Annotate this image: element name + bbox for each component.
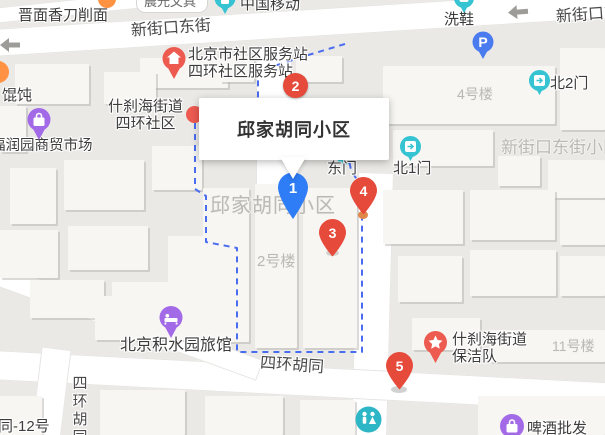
building: [64, 160, 144, 210]
result-marker-4[interactable]: 4: [350, 177, 377, 215]
orange-poi-icon-partial-left[interactable]: [0, 61, 9, 83]
building: [470, 190, 555, 240]
result-marker-1[interactable]: 1: [278, 172, 308, 220]
orange-poi-icon-partial-top[interactable]: [98, 0, 116, 8]
poi-label-xixie[interactable]: 洗鞋: [444, 12, 474, 29]
svg-text:4: 4: [360, 183, 368, 199]
building: [498, 156, 540, 186]
building: [0, 230, 58, 278]
building: [68, 226, 148, 270]
building: [30, 280, 104, 318]
poi-label-hotel[interactable]: 北京积水园旅馆: [120, 337, 232, 355]
xixie-pin-icon[interactable]: [453, 0, 475, 14]
poi-label-shichahai-shequ[interactable]: 什刹海街道 四环社区: [108, 99, 183, 132]
baojiedui-pin-icon[interactable]: [423, 331, 448, 364]
china-mobile-pin-icon[interactable]: [214, 0, 236, 15]
marker-2-number: 2: [292, 78, 300, 94]
building: [470, 250, 556, 296]
svg-text:1: 1: [289, 180, 297, 197]
poi-label-dongmen[interactable]: 东门: [327, 161, 357, 178]
poi-label-bei1men[interactable]: 北1门: [393, 161, 431, 178]
poi-label-beer[interactable]: 啤酒批发: [527, 421, 587, 435]
svg-text:5: 5: [396, 358, 404, 374]
building: [383, 190, 463, 244]
road-direction-arrow-left: [0, 38, 20, 52]
result-marker-5[interactable]: 5: [386, 352, 413, 390]
building: [398, 256, 462, 302]
place-title[interactable]: 邱家胡同小区: [237, 116, 351, 142]
poi-label-jinmian[interactable]: 晋面香刀削面: [18, 8, 108, 25]
building: [100, 390, 185, 435]
area-label-qiujia-hutong-xiaoqu: 邱家胡同小区: [210, 195, 336, 217]
building: [10, 168, 56, 224]
area-label-xinjiekou-dongjie-xiaoqu: 新街口东街小区: [501, 139, 605, 158]
place-info-card-tail: [280, 157, 306, 179]
label-building-4: 4号楼: [457, 87, 493, 102]
place-info-card[interactable]: 邱家胡同小区: [199, 98, 389, 160]
building: [205, 396, 283, 435]
svg-text:P: P: [478, 34, 487, 50]
svg-text:3: 3: [329, 225, 337, 241]
poi-label-huntun[interactable]: 馄饨: [2, 88, 32, 105]
poi-label-china-mobile[interactable]: 中国移动: [240, 0, 300, 14]
bei1men-gate-icon[interactable]: [399, 136, 422, 162]
hotel-pin-icon[interactable]: [159, 306, 183, 339]
bei2men-gate-icon[interactable]: [528, 70, 551, 96]
poi-label-bei2men[interactable]: 北2门: [550, 76, 588, 93]
building: [300, 400, 355, 435]
beer-pin-icon[interactable]: [500, 414, 524, 435]
market-pin-icon[interactable]: [27, 108, 51, 141]
result-marker-2[interactable]: 2: [283, 73, 308, 98]
label-tong-12hao: 同-12号: [0, 419, 50, 435]
label-building-11: 11号楼: [552, 339, 595, 354]
poi-label-chenguang[interactable]: 晨光文具: [144, 0, 196, 9]
result-marker-3[interactable]: 3: [319, 219, 346, 257]
building: [560, 200, 605, 245]
label-building-2: 2号楼: [257, 254, 295, 271]
poi-label-baojiedui[interactable]: 什刹海街道 保洁队: [452, 332, 527, 365]
building: [560, 256, 605, 296]
poi-label-market[interactable]: 福润园商贸市场: [0, 139, 93, 155]
road-direction-arrow-left-2: [507, 4, 530, 20]
road-label-sihuan-hutong-vertical: 四环胡同: [70, 375, 87, 435]
parking-icon[interactable]: P: [472, 31, 494, 60]
map-canvas[interactable]: 邱家胡同小区 4号楼 2号楼 11号楼 新街口东街小区 新街口东街 新街口东街 …: [0, 0, 605, 435]
toilet-wc-icon[interactable]: [355, 406, 382, 435]
fuwuzhan-pin-icon[interactable]: [162, 47, 186, 80]
building: [548, 160, 605, 198]
building: [152, 146, 202, 190]
